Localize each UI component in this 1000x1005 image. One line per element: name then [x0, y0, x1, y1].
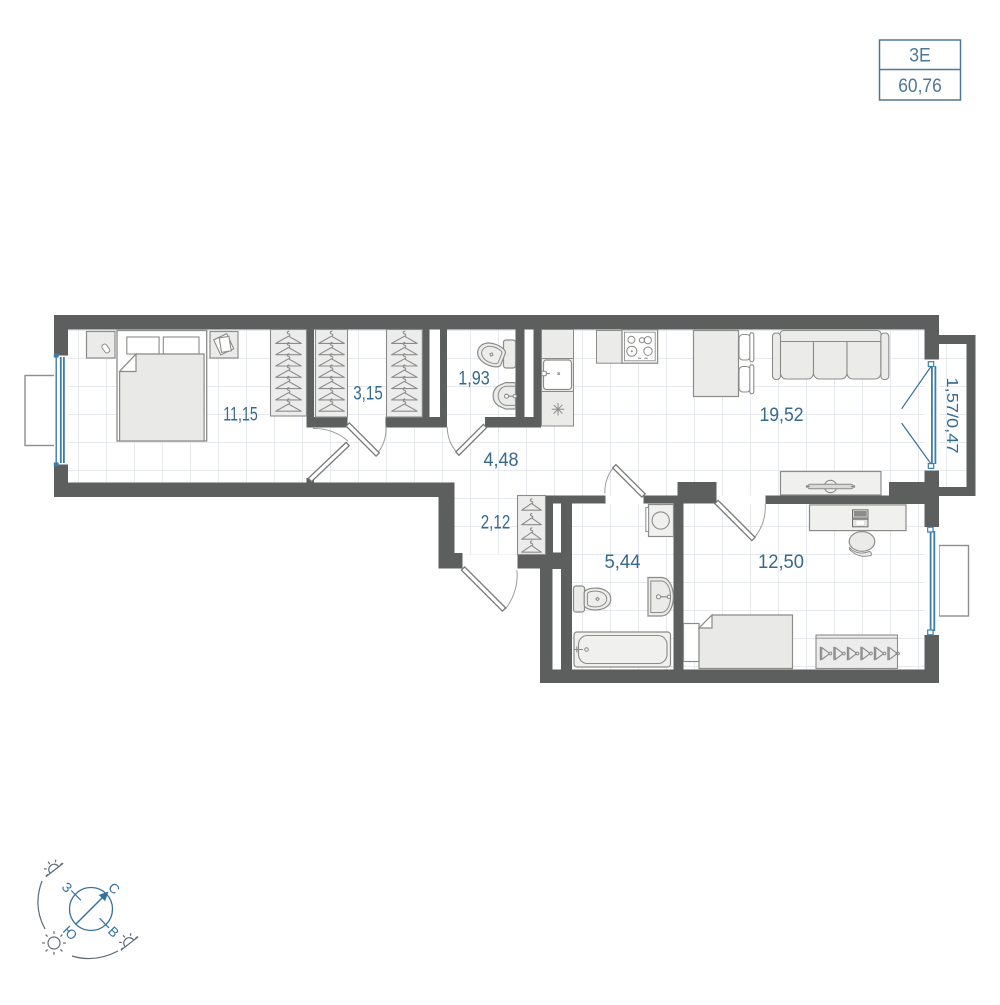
svg-text:4,48: 4,48	[484, 450, 519, 471]
svg-text:5,44: 5,44	[605, 552, 641, 573]
svg-text:2,12: 2,12	[481, 513, 511, 534]
svg-text:3,15: 3,15	[353, 384, 383, 405]
svg-text:11,15: 11,15	[223, 405, 258, 426]
svg-text:1,93: 1,93	[458, 369, 490, 390]
svg-text:19,52: 19,52	[760, 405, 804, 426]
svg-text:1,57/0,47: 1,57/0,47	[943, 378, 960, 454]
svg-text:60,76: 60,76	[898, 76, 942, 97]
svg-text:12,50: 12,50	[758, 552, 804, 573]
svg-text:3Е: 3Е	[909, 46, 931, 67]
